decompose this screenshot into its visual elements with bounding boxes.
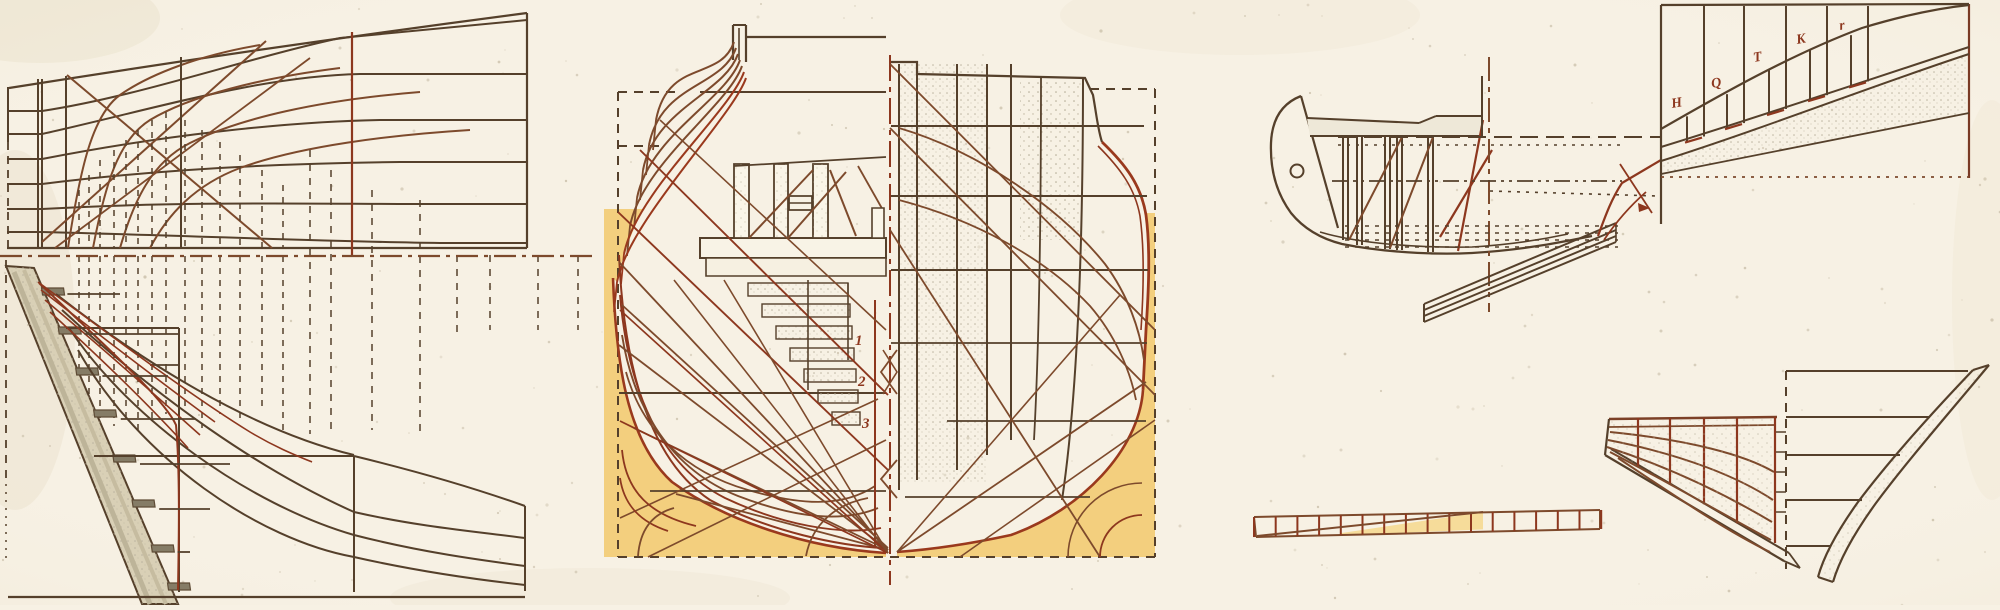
svg-text:2: 2: [857, 374, 866, 390]
svg-text:3: 3: [861, 416, 870, 432]
svg-text:1: 1: [855, 333, 863, 349]
